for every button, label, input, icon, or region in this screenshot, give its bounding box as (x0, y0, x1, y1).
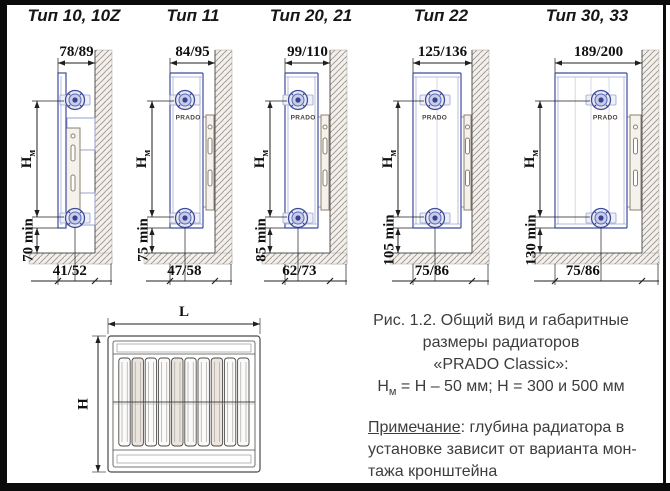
radiator-front-view: L H (70, 296, 280, 488)
mount-height-label: Нм (134, 150, 156, 168)
depth-dimension-label: 125/136 (418, 44, 467, 61)
panel-type-22: Тип 22 125/136 Нм 105 min 75/86 PRADO (378, 0, 504, 292)
caption-formula: Нм = Н – 50 мм; Н = 300 и 500 мм (340, 376, 662, 403)
min-clearance-label: 105 min (382, 214, 399, 265)
mount-height-label: Нм (252, 150, 274, 168)
panel-title: Тип 11 (140, 6, 246, 26)
wall (95, 50, 112, 264)
min-clearance-label: 85 min (254, 218, 271, 262)
height-dimension-label: H (76, 398, 93, 410)
bottom-dimension-label: 75/86 (566, 263, 600, 280)
figure-note: Примечание: глубина радиатора в установк… (368, 417, 660, 483)
min-clearance-label: 70 min (21, 218, 38, 262)
front-panel-grill (108, 336, 260, 472)
bottom-dimension-label: 47/58 (167, 263, 201, 280)
mount-height-label: Нм (380, 150, 402, 168)
prado-logo: PRADO (593, 115, 618, 122)
panel-type-20-21: Тип 20, 21 99/110 Нм 85 min 62/73 PRADO (248, 0, 374, 292)
panel-title: Тип 10, 10Z (10, 6, 138, 26)
panel-type-10-10z: Тип 10, 10Z 78/89 Нм 70 min 41/52 (10, 0, 138, 292)
depth-dimension-label: 84/95 (175, 44, 209, 61)
bottom-dimension-label: 62/73 (282, 263, 316, 280)
min-clearance-label: 75 min (136, 218, 153, 262)
prado-logo: PRADO (291, 115, 316, 122)
depth-dimension-label: 189/200 (574, 44, 623, 61)
wall (472, 50, 489, 264)
length-dimension-label: L (179, 304, 189, 321)
caption-line: «PRADO Classic»: (340, 354, 662, 376)
caption-line: размеры радиаторов (340, 332, 662, 354)
frame-left-bar (0, 0, 7, 491)
figure-page: Тип 10, 10Z 78/89 Нм 70 min 41/52 Тип 11… (0, 0, 670, 491)
front-view-drawing (70, 296, 280, 488)
panel-title: Тип 22 (378, 6, 504, 26)
depth-dimension-label: 78/89 (59, 44, 93, 61)
bottom-dimension-label: 75/86 (415, 263, 449, 280)
depth-dimension-label: 99/110 (287, 44, 328, 61)
mount-height-label: Нм (522, 150, 544, 168)
wall (215, 50, 232, 264)
note-label: Примечание (368, 419, 461, 436)
wall (642, 50, 659, 264)
prado-logo: PRADO (176, 115, 201, 122)
panel-title: Тип 20, 21 (248, 6, 374, 26)
bottom-dimension-label: 41/52 (53, 263, 87, 280)
figure-caption: Рис. 1.2. Общий вид и габаритные размеры… (340, 310, 662, 403)
mount-height-label: Нм (19, 150, 41, 168)
panel-type-30-33: Тип 30, 33 189/200 Нм 130 min 75/86 PRAD… (508, 0, 666, 292)
caption-line: Рис. 1.2. Общий вид и габаритные (340, 310, 662, 332)
min-clearance-label: 130 min (524, 214, 541, 265)
wall (330, 50, 347, 264)
panel-title: Тип 30, 33 (508, 6, 666, 26)
prado-logo: PRADO (422, 115, 447, 122)
panel-type-11: Тип 11 84/95 Нм 75 min 47/58 PRADO (140, 0, 246, 292)
